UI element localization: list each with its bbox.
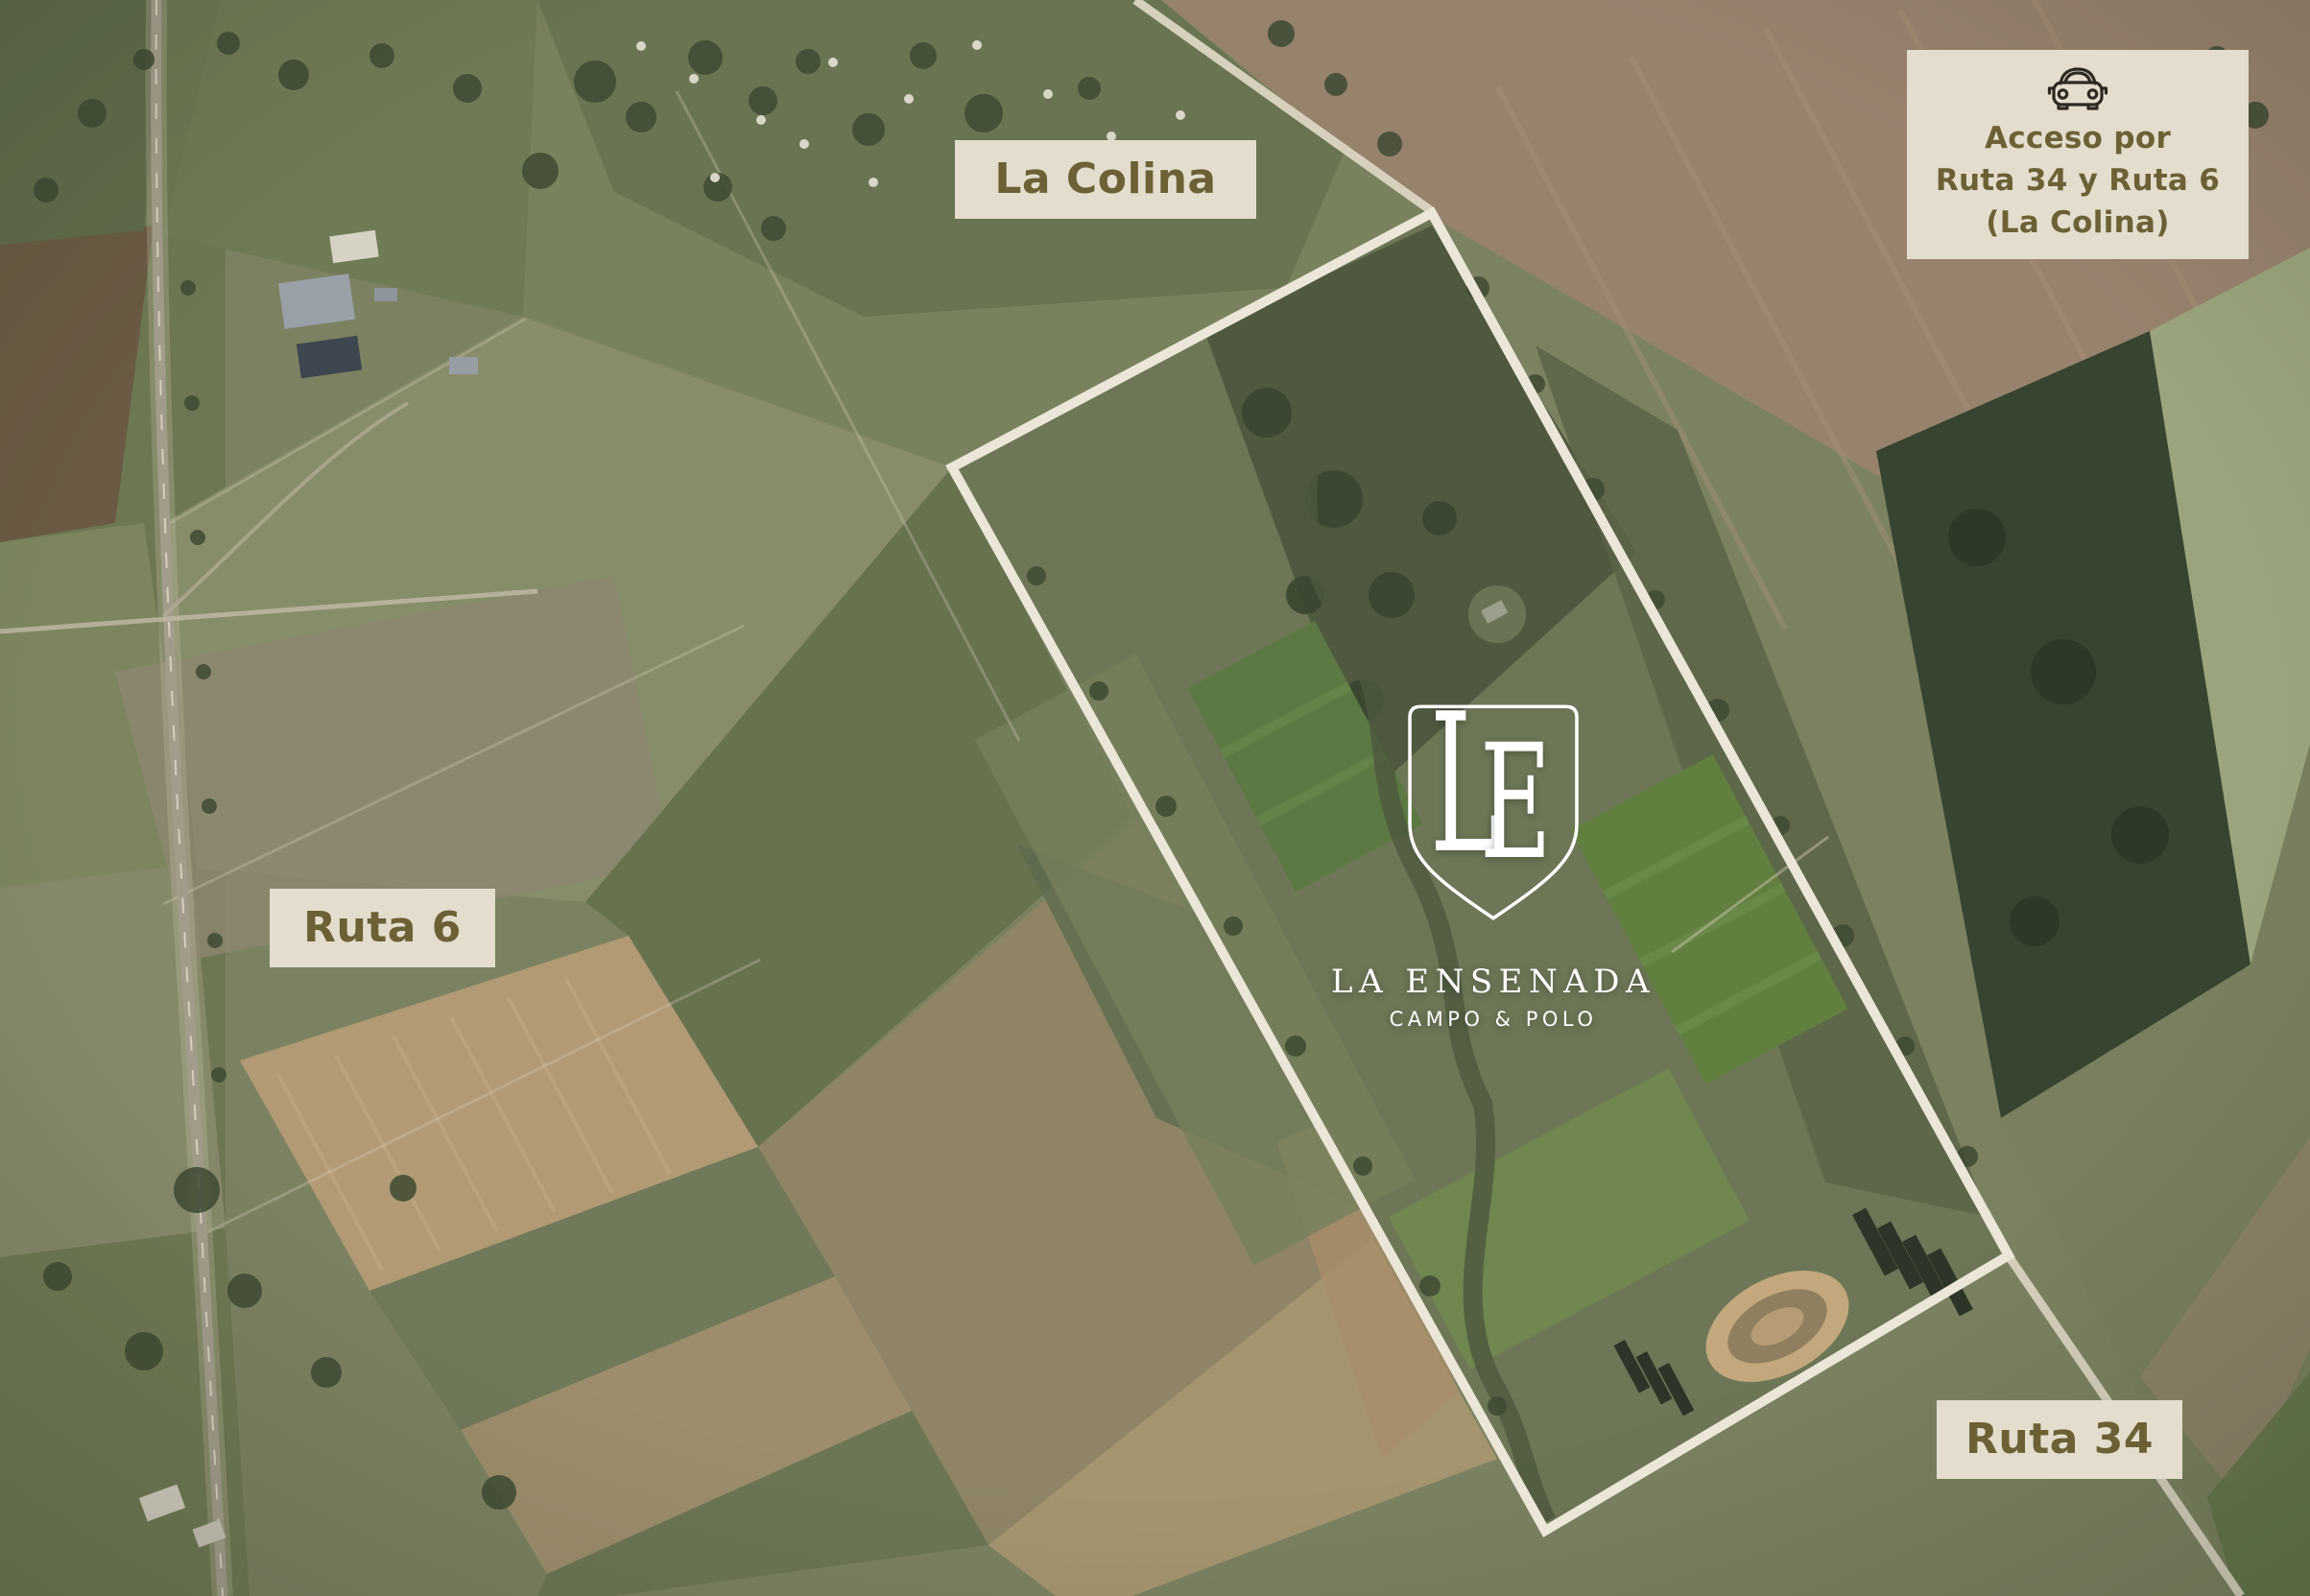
la-colina-text: La Colina	[994, 158, 1216, 201]
ruta-34-text: Ruta 34	[1965, 1418, 2154, 1461]
label-ruta-6: Ruta 6	[270, 889, 495, 967]
label-ruta-34: Ruta 34	[1937, 1400, 2182, 1479]
label-la-colina: La Colina	[955, 140, 1256, 219]
access-note-line-1: Acceso por	[1985, 117, 2171, 159]
access-note-line-3: (La Colina)	[1986, 202, 2169, 244]
ruta-6-text: Ruta 6	[303, 907, 462, 949]
map-canvas: La Colina Ruta 6 Ruta 34 Acceso por Ruta…	[0, 0, 2310, 1596]
car-icon	[2047, 65, 2108, 113]
access-note: Acceso por Ruta 34 y Ruta 6 (La Colina)	[1907, 50, 2249, 259]
access-note-line-2: Ruta 34 y Ruta 6	[1936, 159, 2220, 202]
